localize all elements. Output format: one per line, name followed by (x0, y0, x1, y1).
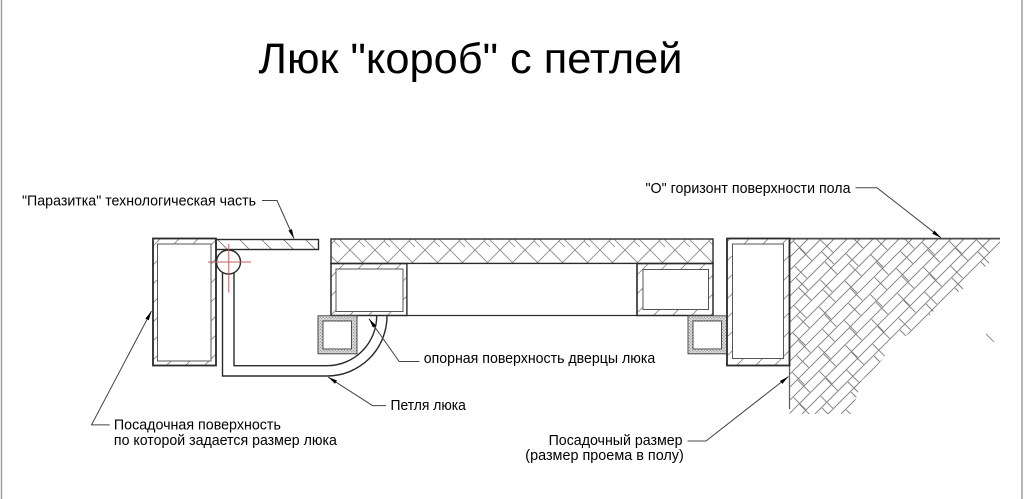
svg-text:"Паразитка" технологическая ча: "Паразитка" технологическая часть (22, 192, 256, 209)
svg-text:по которой задается размер люк: по которой задается размер люка (114, 432, 338, 449)
svg-text:(размер проема в полу): (размер проема в полу) (525, 447, 684, 464)
svg-text:Люк "короб" с петлей: Люк "короб" с петлей (259, 36, 683, 83)
svg-text:"О" горизонт поверхности пола: "О" горизонт поверхности пола (646, 180, 852, 197)
svg-text:опорная поверхность дверцы люк: опорная поверхность дверцы люка (424, 350, 656, 367)
svg-text:Петля люка: Петля люка (391, 397, 467, 414)
